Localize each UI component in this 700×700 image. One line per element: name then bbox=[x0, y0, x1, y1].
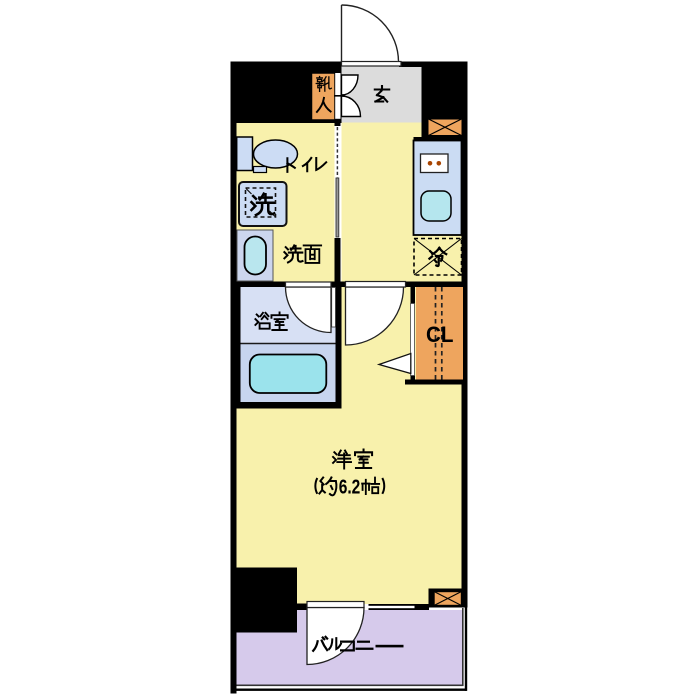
svg-text:CL: CL bbox=[426, 322, 454, 347]
svg-text:6.2: 6.2 bbox=[339, 476, 361, 499]
